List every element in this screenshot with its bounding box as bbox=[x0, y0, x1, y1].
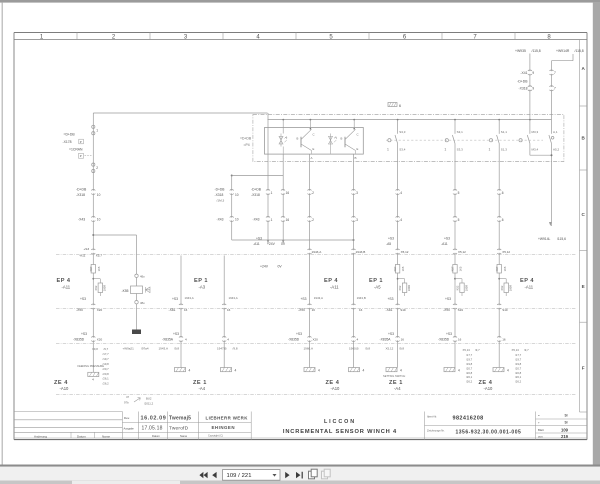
svg-text:B: B bbox=[297, 137, 299, 141]
svg-text:3: 3 bbox=[356, 191, 358, 195]
svg-text:+W9a21: +W9a21 bbox=[123, 346, 135, 350]
svg-text:109: 109 bbox=[561, 428, 569, 433]
svg-text:1356-932.30.00.001-005: 1356-932.30.00.001-005 bbox=[456, 430, 522, 436]
svg-text:16.02.09: 16.02.09 bbox=[141, 416, 167, 422]
svg-text:SETTING SWITCH: SETTING SWITCH bbox=[383, 374, 405, 378]
svg-text:1: 1 bbox=[444, 148, 446, 152]
svg-text:-A11: -A11 bbox=[525, 285, 534, 290]
svg-text:S3,3: S3,3 bbox=[399, 130, 406, 134]
svg-text:1943,B: 1943,B bbox=[357, 296, 366, 300]
svg-text:5: 5 bbox=[458, 191, 460, 195]
svg-text:1: 1 bbox=[489, 148, 491, 152]
svg-text:4: 4 bbox=[235, 369, 237, 373]
svg-text:-D+DB: -D+DB bbox=[517, 80, 528, 84]
svg-text:-A11: -A11 bbox=[441, 242, 448, 246]
svg-text:-X835A: -X835A bbox=[380, 337, 392, 341]
svg-text:=D+DB: =D+DB bbox=[64, 133, 76, 137]
svg-text:SI: SI bbox=[564, 414, 567, 418]
svg-text:M3,4: M3,4 bbox=[532, 148, 539, 152]
svg-text:-X43: -X43 bbox=[217, 217, 224, 221]
svg-text:1943,B: 1943,B bbox=[356, 250, 366, 254]
svg-text:/17,7: /17,7 bbox=[466, 353, 473, 357]
svg-text:16: 16 bbox=[502, 337, 506, 341]
svg-text:ZE 4: ZE 4 bbox=[479, 380, 493, 386]
svg-text:K57: K57 bbox=[393, 266, 397, 271]
svg-text:EP 4: EP 4 bbox=[324, 278, 338, 284]
svg-text:+24V: +24V bbox=[267, 242, 276, 246]
svg-text:1K5: 1K5 bbox=[401, 266, 405, 271]
svg-text:+S3: +S3 bbox=[80, 297, 86, 301]
svg-text:/19,8: /19,8 bbox=[466, 362, 473, 366]
svg-text:+S3: +S3 bbox=[444, 237, 450, 241]
svg-text:-A4: -A4 bbox=[199, 386, 206, 391]
svg-text:/20,7: /20,7 bbox=[515, 366, 522, 370]
svg-text:4: 4 bbox=[507, 369, 509, 373]
svg-text:EP 4: EP 4 bbox=[57, 278, 71, 284]
svg-text:+S3: +S3 bbox=[296, 332, 302, 336]
svg-text:-A10: -A10 bbox=[60, 386, 70, 391]
svg-text:/19,7: /19,7 bbox=[515, 358, 522, 362]
svg-text:219: 219 bbox=[561, 434, 569, 439]
svg-text:X20: X20 bbox=[313, 337, 319, 341]
svg-text:/2011,2: /2011,2 bbox=[144, 402, 154, 406]
svg-text:6: 6 bbox=[399, 104, 401, 108]
svg-text:100R: 100R bbox=[464, 285, 468, 291]
svg-text:A,1: A,1 bbox=[553, 130, 558, 134]
svg-text:/9,8: /9,8 bbox=[365, 346, 370, 350]
svg-text:1943,A: 1943,A bbox=[314, 296, 323, 300]
svg-text:100R: 100R bbox=[407, 285, 411, 291]
svg-text:+S3: +S3 bbox=[256, 237, 262, 241]
svg-text:Blatt: Blatt bbox=[538, 428, 544, 432]
svg-text:9: 9 bbox=[532, 71, 534, 75]
svg-text:Ident-Nr.: Ident-Nr. bbox=[427, 415, 437, 419]
svg-text:-K55: -K55 bbox=[122, 289, 129, 293]
svg-text:-A11: -A11 bbox=[62, 285, 71, 290]
svg-text:Name: Name bbox=[180, 434, 188, 438]
svg-text:S1,1: S1,1 bbox=[501, 130, 508, 134]
svg-text:4: 4 bbox=[318, 369, 320, 373]
svg-text:P: P bbox=[80, 140, 82, 144]
svg-text:ZE 1: ZE 1 bbox=[389, 380, 403, 386]
svg-text:+S3: +S3 bbox=[81, 332, 87, 336]
svg-text:S3,4: S3,4 bbox=[399, 148, 406, 152]
svg-text:/115,8: /115,8 bbox=[575, 49, 584, 53]
svg-text:+S3: +S3 bbox=[388, 332, 394, 336]
svg-text:10: 10 bbox=[235, 217, 239, 221]
svg-text:X5,13: X5,13 bbox=[512, 348, 520, 352]
svg-text:-D+DB: -D+DB bbox=[251, 188, 262, 192]
svg-text:Anderung: Anderung bbox=[34, 434, 47, 438]
svg-text:K52: K52 bbox=[94, 285, 98, 290]
svg-text:4: 4 bbox=[458, 369, 460, 373]
svg-text:1K5: 1K5 bbox=[459, 266, 463, 271]
svg-text:1943,A: 1943,A bbox=[159, 346, 169, 350]
svg-text:C: C bbox=[313, 133, 315, 137]
svg-text:4: 4 bbox=[400, 191, 402, 195]
svg-text:/19,7: /19,7 bbox=[466, 358, 473, 362]
svg-text:FEEDING PRESSURE: FEEDING PRESSURE bbox=[78, 364, 105, 368]
svg-text:10: 10 bbox=[235, 193, 239, 197]
svg-text:7: 7 bbox=[554, 71, 556, 75]
svg-text:X20: X20 bbox=[97, 308, 103, 312]
svg-text:X5,12: X5,12 bbox=[401, 250, 409, 254]
svg-text:E: E bbox=[582, 284, 585, 289]
svg-text:BU2: BU2 bbox=[146, 397, 152, 401]
svg-text:5: 5 bbox=[458, 218, 460, 222]
svg-text:4: 4 bbox=[189, 369, 191, 373]
svg-text:/17,7: /17,7 bbox=[515, 353, 522, 357]
svg-text:-A11: -A11 bbox=[253, 242, 260, 246]
svg-text:+S3: +S3 bbox=[388, 297, 394, 301]
svg-text:/20,8: /20,8 bbox=[515, 371, 522, 375]
svg-text:LIEBHERR WERK: LIEBHERR WERK bbox=[206, 416, 249, 421]
svg-text:-X835D: -X835D bbox=[288, 337, 300, 341]
svg-text:EP 4: EP 4 bbox=[520, 278, 534, 284]
svg-text:F: F bbox=[582, 366, 585, 371]
svg-text:+S3: +S3 bbox=[172, 297, 178, 301]
svg-text:16: 16 bbox=[227, 308, 231, 312]
svg-text:-A11: -A11 bbox=[330, 285, 339, 290]
svg-text:-D+DB: -D+DB bbox=[215, 188, 226, 192]
svg-text:/9,8: /9,8 bbox=[399, 346, 404, 350]
svg-text:1947,B: 1947,B bbox=[217, 346, 227, 350]
svg-text:/115,6: /115,6 bbox=[557, 237, 566, 241]
svg-text:+W914R: +W914R bbox=[556, 49, 570, 53]
svg-text:4Bo: 4Bo bbox=[140, 275, 145, 279]
svg-text:A: A bbox=[310, 156, 312, 160]
svg-text:/17,7: /17,7 bbox=[103, 352, 110, 356]
svg-text:Ausgabe: Ausgabe bbox=[124, 426, 135, 430]
svg-text:-X81: -X81 bbox=[386, 308, 393, 312]
svg-text:K52: K52 bbox=[456, 285, 460, 290]
svg-text:17.05.18: 17.05.18 bbox=[142, 426, 163, 432]
svg-text:-X90: -X90 bbox=[298, 308, 305, 312]
svg-text:0V: 0V bbox=[278, 265, 283, 269]
svg-text:-X41: -X41 bbox=[520, 71, 527, 75]
svg-text:+W914L: +W914L bbox=[538, 237, 551, 241]
svg-text:S1,3: S1,3 bbox=[501, 148, 508, 152]
svg-text:100R: 100R bbox=[509, 285, 513, 291]
svg-text:B: B bbox=[341, 137, 343, 141]
svg-text:/19,7: /19,7 bbox=[103, 357, 110, 361]
svg-text:/20,8: /20,8 bbox=[466, 371, 473, 375]
svg-text:10: 10 bbox=[97, 193, 101, 197]
svg-text:/115,8: /115,8 bbox=[532, 49, 541, 53]
svg-text:/26,1: /26,1 bbox=[515, 375, 522, 379]
svg-text:1K5: 1K5 bbox=[503, 266, 507, 271]
svg-text:+S3: +S3 bbox=[445, 297, 451, 301]
svg-text:P: P bbox=[80, 154, 82, 158]
svg-text:-X835D: -X835D bbox=[438, 337, 450, 341]
svg-text:2: 2 bbox=[96, 166, 98, 170]
svg-text:/26,1: /26,1 bbox=[103, 377, 110, 381]
svg-text:/26,2: /26,2 bbox=[466, 380, 473, 384]
svg-text:K52: K52 bbox=[398, 285, 402, 290]
svg-text:-D+DB: -D+DB bbox=[76, 188, 87, 192]
svg-text:EP 1: EP 1 bbox=[369, 278, 383, 284]
svg-text:1: 1 bbox=[387, 148, 389, 152]
svg-text:ZE 1: ZE 1 bbox=[193, 380, 207, 386]
svg-text:16: 16 bbox=[286, 218, 290, 222]
svg-text:E: E bbox=[313, 147, 315, 151]
svg-text:16: 16 bbox=[359, 308, 363, 312]
svg-text:16: 16 bbox=[184, 308, 188, 312]
svg-text:1960,B: 1960,B bbox=[349, 346, 359, 350]
svg-text:+S3: +S3 bbox=[301, 297, 307, 301]
svg-text:-A10: -A10 bbox=[484, 386, 494, 391]
svg-text:2: 2 bbox=[312, 191, 314, 195]
svg-text:/1M,3: /1M,3 bbox=[217, 199, 225, 203]
svg-text:-A5: -A5 bbox=[374, 285, 381, 290]
svg-text:1943,A: 1943,A bbox=[312, 250, 323, 254]
svg-text:=P4: =P4 bbox=[244, 143, 250, 147]
svg-text:C: C bbox=[357, 133, 359, 137]
svg-text:S10: S10 bbox=[502, 308, 508, 312]
svg-text:-X178: -X178 bbox=[63, 140, 72, 144]
svg-text:3: 3 bbox=[356, 218, 358, 222]
svg-text:6: 6 bbox=[502, 218, 504, 222]
svg-text:S19: S19 bbox=[400, 308, 406, 312]
svg-text:+24V: +24V bbox=[260, 265, 269, 269]
svg-text:K57: K57 bbox=[89, 266, 93, 271]
svg-text:-A3: -A3 bbox=[199, 285, 206, 290]
svg-text:-A10: -A10 bbox=[331, 386, 341, 391]
svg-text:+S3: +S3 bbox=[388, 237, 394, 241]
svg-text:-X43: -X43 bbox=[253, 217, 260, 221]
svg-text:4: 4 bbox=[400, 218, 402, 222]
svg-text:Name: Name bbox=[102, 434, 110, 438]
svg-text:1943,A: 1943,A bbox=[185, 296, 194, 300]
svg-text:=1CRAN: =1CRAN bbox=[69, 148, 83, 152]
svg-text:-X318: -X318 bbox=[251, 193, 260, 197]
svg-text:10: 10 bbox=[97, 217, 101, 221]
svg-text:/19,8: /19,8 bbox=[515, 362, 522, 366]
svg-text:1943,A: 1943,A bbox=[229, 296, 238, 300]
svg-text:X9,8: X9,8 bbox=[92, 347, 98, 351]
svg-text:16: 16 bbox=[312, 308, 316, 312]
svg-text:/9,7: /9,7 bbox=[104, 347, 109, 351]
svg-text:109 / 221: 109 / 221 bbox=[227, 473, 252, 479]
svg-text:K52: K52 bbox=[500, 285, 504, 290]
svg-text:/26,2: /26,2 bbox=[515, 380, 522, 384]
svg-text:/9,8: /9,8 bbox=[174, 346, 179, 350]
svg-text:A5,2: A5,2 bbox=[553, 148, 560, 152]
svg-text:6: 6 bbox=[502, 191, 504, 195]
svg-text:K57: K57 bbox=[495, 266, 499, 271]
svg-text:+W935: +W935 bbox=[515, 49, 526, 53]
svg-text:/9,8: /9,8 bbox=[233, 346, 238, 350]
svg-text:-A4: -A4 bbox=[394, 386, 401, 391]
svg-text:100R: 100R bbox=[103, 285, 107, 291]
svg-text:47: 47 bbox=[126, 395, 130, 399]
svg-text:4: 4 bbox=[363, 369, 365, 373]
svg-text:/20,8: /20,8 bbox=[103, 372, 110, 376]
svg-text:X5,12: X5,12 bbox=[386, 346, 394, 350]
svg-text:/26,2: /26,2 bbox=[103, 382, 110, 386]
svg-text:-X318: -X318 bbox=[215, 193, 224, 197]
svg-text:16: 16 bbox=[286, 191, 290, 195]
svg-text:S3,3: S3,3 bbox=[457, 148, 464, 152]
svg-text:-X90: -X90 bbox=[76, 308, 83, 312]
svg-text:M3,3: M3,3 bbox=[532, 130, 539, 134]
svg-text:ZE 4: ZE 4 bbox=[326, 380, 340, 386]
svg-text:LICCON: LICCON bbox=[324, 419, 356, 425]
svg-text:S3,1: S3,1 bbox=[457, 130, 464, 134]
svg-text:ZE 4: ZE 4 bbox=[54, 380, 68, 386]
svg-text:1960,A: 1960,A bbox=[304, 346, 314, 350]
svg-text:1: 1 bbox=[96, 129, 98, 133]
svg-text:+S3: +S3 bbox=[446, 332, 452, 336]
svg-text:von: von bbox=[538, 435, 543, 439]
svg-text:-X90: -X90 bbox=[443, 308, 450, 312]
svg-text:-A5: -A5 bbox=[386, 242, 391, 246]
svg-text:Datum: Datum bbox=[77, 434, 86, 438]
svg-text:K57: K57 bbox=[451, 266, 455, 271]
svg-text:16: 16 bbox=[401, 337, 405, 341]
svg-text:Datum: Datum bbox=[152, 434, 161, 438]
svg-text:X5,13: X5,13 bbox=[463, 348, 471, 352]
svg-text:S19: S19 bbox=[458, 308, 464, 312]
svg-text:Copyright (C): Copyright (C) bbox=[208, 435, 223, 438]
svg-text:B: B bbox=[354, 156, 356, 160]
svg-text:X5,12: X5,12 bbox=[502, 250, 510, 254]
svg-text:Twemaj5: Twemaj5 bbox=[169, 416, 191, 422]
svg-text:97b: 97b bbox=[124, 401, 129, 405]
svg-text:/26,1: /26,1 bbox=[466, 375, 473, 379]
svg-text:/20,7: /20,7 bbox=[466, 366, 473, 370]
svg-text:Dev.: Dev. bbox=[124, 416, 130, 420]
svg-text:Zeichnungs-Nr.: Zeichnungs-Nr. bbox=[427, 428, 445, 432]
svg-text:1: 1 bbox=[271, 191, 273, 195]
svg-text:X20: X20 bbox=[97, 337, 103, 341]
svg-text:X5,12: X5,12 bbox=[458, 250, 466, 254]
svg-text:+S3: +S3 bbox=[84, 247, 90, 251]
svg-text:/9,7: /9,7 bbox=[475, 348, 480, 352]
svg-text:SI: SI bbox=[564, 421, 567, 425]
svg-text:-X835A: -X835A bbox=[162, 337, 174, 341]
svg-text:+S3: +S3 bbox=[173, 332, 179, 336]
svg-text:-X318: -X318 bbox=[76, 193, 85, 197]
svg-text:4: 4 bbox=[400, 369, 402, 373]
svg-text:=D+DB: =D+DB bbox=[240, 137, 252, 141]
svg-text:TwerofD: TwerofD bbox=[169, 426, 189, 432]
svg-text:INCREMENTAL SENSOR WINCH 4: INCREMENTAL SENSOR WINCH 4 bbox=[283, 429, 397, 435]
svg-text:1: 1 bbox=[271, 218, 273, 222]
svg-text:/9,7: /9,7 bbox=[524, 348, 529, 352]
svg-text:1K5: 1K5 bbox=[97, 266, 101, 271]
svg-text:16: 16 bbox=[458, 337, 462, 341]
svg-text:2: 2 bbox=[312, 218, 314, 222]
svg-text:EP 1: EP 1 bbox=[194, 278, 208, 284]
svg-text:EHINGEN: EHINGEN bbox=[212, 425, 236, 430]
svg-text:-X835D: -X835D bbox=[73, 337, 85, 341]
svg-text:X5,7: X5,7 bbox=[96, 253, 103, 257]
svg-text:E: E bbox=[357, 147, 359, 151]
svg-text:-X81: -X81 bbox=[169, 308, 176, 312]
svg-text:982416208: 982416208 bbox=[453, 416, 484, 422]
svg-text:4Bo: 4Bo bbox=[140, 301, 145, 305]
svg-text:-X43: -X43 bbox=[78, 217, 85, 221]
svg-text:-A11: -A11 bbox=[79, 253, 86, 257]
svg-text:9: 9 bbox=[532, 87, 534, 91]
svg-text:/97a4: /97a4 bbox=[141, 346, 149, 350]
svg-text:-X318: -X318 bbox=[518, 87, 527, 91]
svg-text:7: 7 bbox=[554, 87, 556, 91]
